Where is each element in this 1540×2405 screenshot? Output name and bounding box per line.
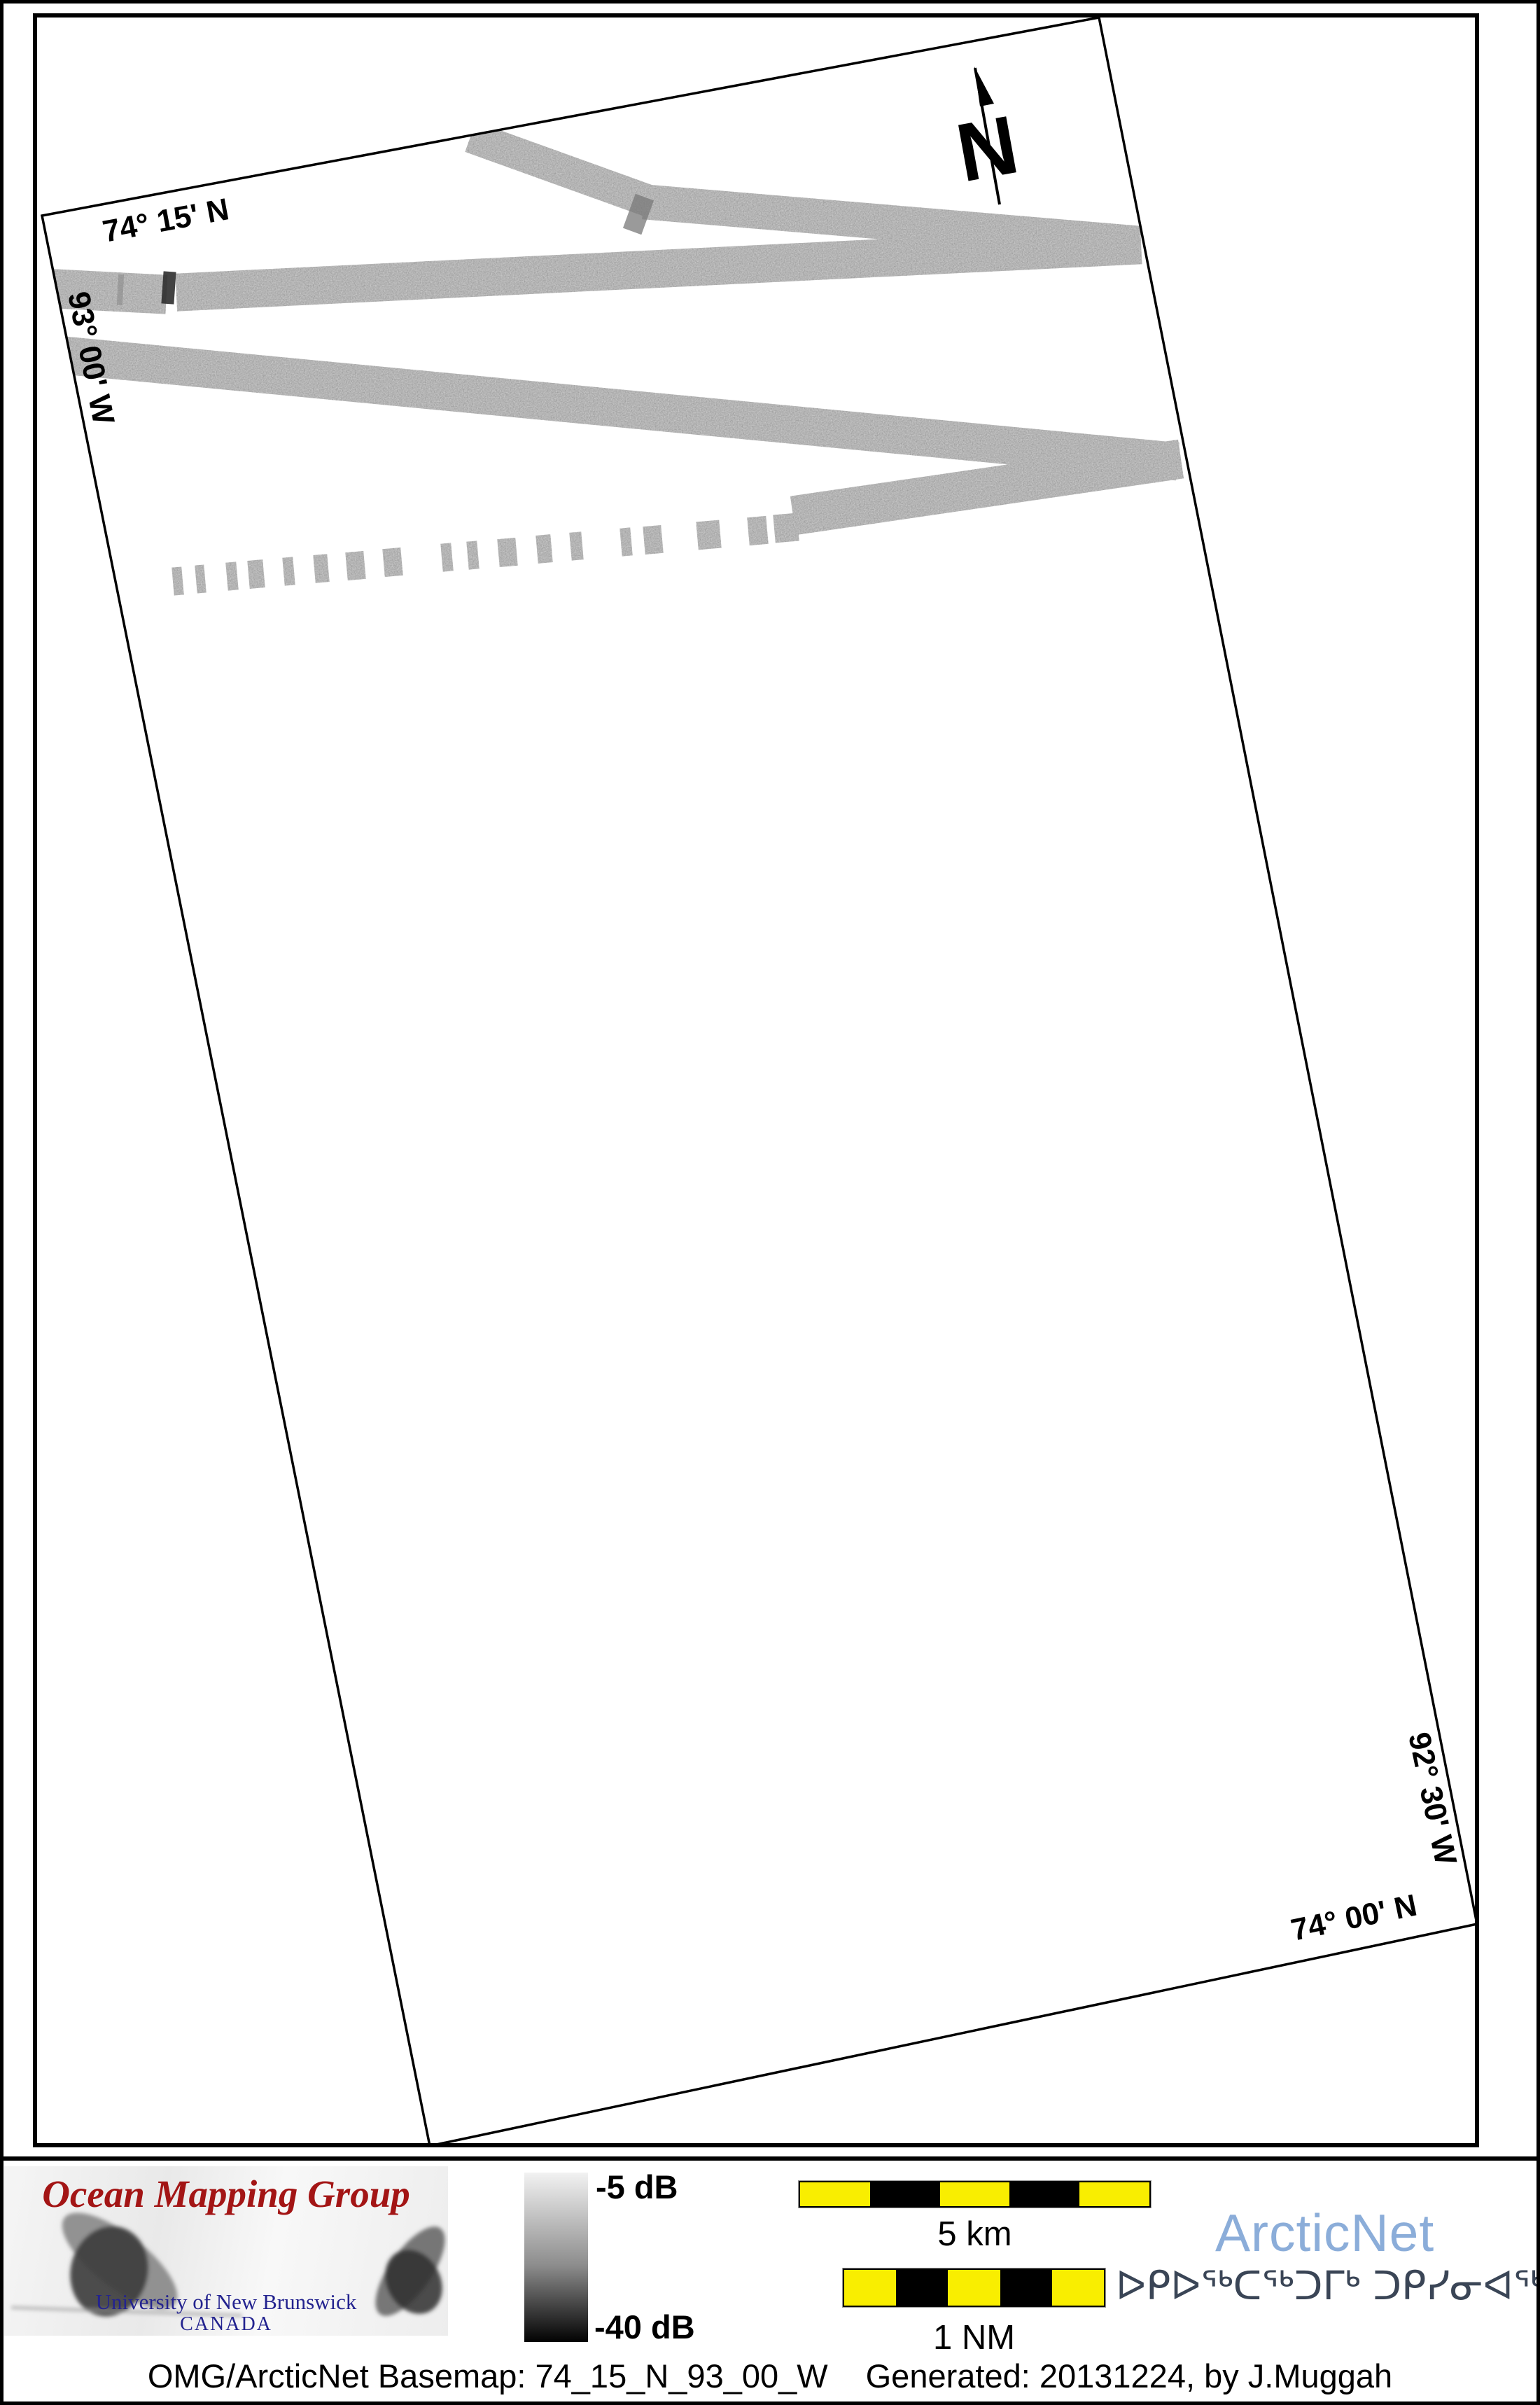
sonar-swath [497, 538, 517, 567]
sonar-swath [171, 566, 183, 595]
caption-generated: Generated: 20131224, by J.Muggah [866, 2357, 1393, 2395]
scalebar-nm [843, 2268, 1105, 2307]
scalebar-segment [1079, 2182, 1149, 2206]
map-caption: OMG/ArcticNet Basemap: 74_15_N_93_00_W G… [0, 2357, 1540, 2395]
omg-logo: Ocean Mapping Group University of New Br… [4, 2166, 448, 2336]
north-arrow-label: N [950, 98, 1025, 200]
sonar-swath [382, 548, 402, 577]
graticule-label-lat-bottom: 74° 00' N [1288, 1888, 1420, 1948]
scalebar-segment [844, 2270, 896, 2306]
sonar-swath [225, 562, 238, 590]
sonar-swath [40, 268, 168, 314]
scalebar-segment [896, 2270, 948, 2306]
graticule-label-lon-right: 92° 30' W [1401, 1729, 1463, 1868]
arcticnet-inuktitut-name: ᐅᑭᐅᖅᑕᖅᑐᒥᒃ ᑐᑭᓯᓂᐊᖅᑎᑏᑦ [1116, 2264, 1540, 2309]
sonar-swath [161, 271, 176, 304]
scalebar-km-label: 5 km [799, 2215, 1151, 2254]
map-canvas: N 74° 15' N 93° 00' W 92° 30' W 74° 00' … [0, 0, 1540, 2405]
scalebar-segment [940, 2182, 1010, 2206]
map-legend-divider [0, 2156, 1540, 2161]
sonar-swath [41, 335, 1179, 480]
scalebar-segment [1000, 2270, 1052, 2306]
sonar-swath [747, 516, 768, 545]
omg-logo-university: University of New Brunswick [4, 2289, 448, 2315]
colorbar-min-label: -40 dB [594, 2308, 695, 2346]
sonar-swath [282, 557, 295, 585]
scalebar-nm-label: 1 NM [843, 2318, 1105, 2357]
sonar-swath [465, 122, 657, 218]
sonar-swath [195, 565, 206, 594]
sonar-swath [535, 534, 552, 564]
sonar-swath [313, 554, 329, 583]
scalebar-segment [870, 2182, 940, 2206]
scalebar-segment [1052, 2270, 1104, 2306]
north-arrow-head [974, 67, 994, 106]
sonar-swath [345, 551, 365, 580]
sonar-swath [619, 527, 632, 556]
caption-basemap-id: OMG/ArcticNet Basemap: 74_15_N_93_00_W [148, 2357, 828, 2395]
swath-noise-group [40, 122, 1184, 596]
basemap-page: N 74° 15' N 93° 00' W 92° 30' W 74° 00' … [0, 0, 1540, 2405]
sonar-swath [696, 520, 721, 550]
sonar-swath [176, 226, 1142, 311]
sonar-swath [466, 541, 479, 569]
scalebar-km [799, 2181, 1151, 2208]
sonar-swath-layer [40, 122, 1184, 596]
sonar-swath [440, 543, 453, 571]
backscatter-colorbar [524, 2173, 588, 2342]
scalebar-segment [800, 2182, 870, 2206]
arcticnet-wordmark: ArcticNet [1215, 2203, 1434, 2263]
sonar-swath [247, 559, 265, 589]
sonar-swath [569, 531, 583, 560]
scalebar-segment [1009, 2182, 1079, 2206]
scalebar-segment [948, 2270, 1000, 2306]
omg-logo-title: Ocean Mapping Group [4, 2172, 448, 2216]
omg-logo-country: CANADA [4, 2313, 448, 2336]
north-arrow: N [950, 67, 1025, 204]
colorbar-max-label: -5 dB [596, 2168, 678, 2206]
map-neatline [42, 18, 1477, 2146]
sonar-swath [773, 513, 799, 543]
sonar-swath [643, 525, 663, 555]
